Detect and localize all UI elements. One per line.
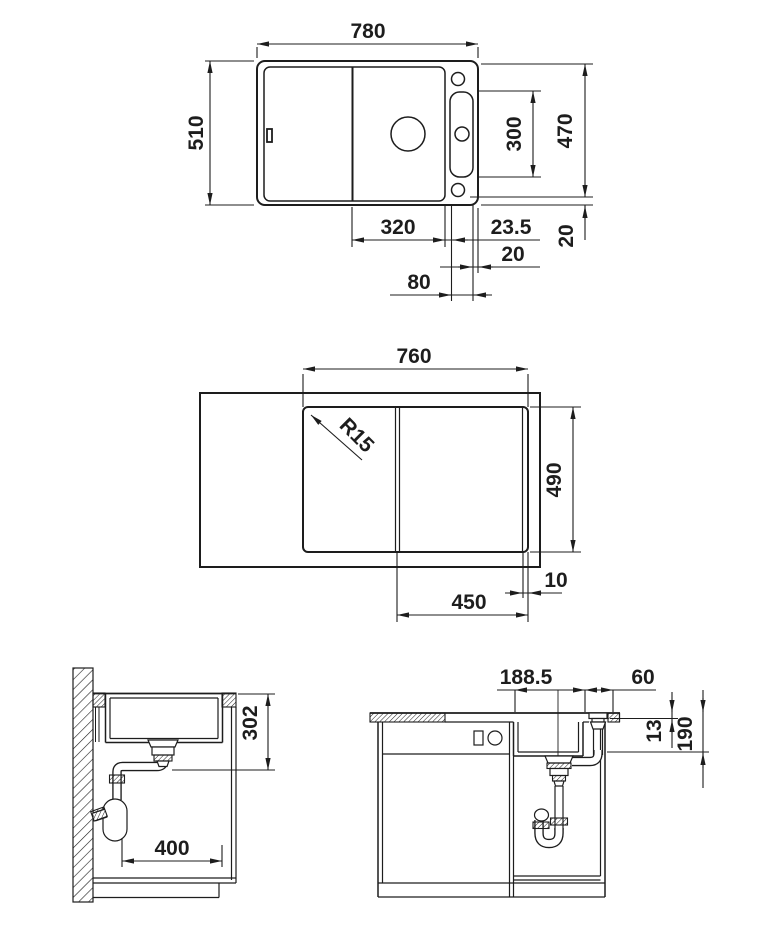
worktop-outline xyxy=(200,393,540,567)
sink-inner-rim xyxy=(264,67,445,201)
tap-hole-middle xyxy=(455,127,469,141)
trap-outlet-end xyxy=(535,809,549,821)
dim-label-60: 60 xyxy=(631,666,654,689)
dim-label-490: 490 xyxy=(543,462,566,497)
counter-hatch-right xyxy=(608,713,620,722)
dim-label-edge-gap-20: 20 xyxy=(501,243,524,266)
dim-label-450: 450 xyxy=(451,591,486,614)
dim-label-rear-gap-20: 20 xyxy=(555,224,578,247)
view-front-section: 188.5 60 13 190 xyxy=(370,666,709,897)
dim-label-300: 300 xyxy=(503,116,526,151)
dim-label-760: 760 xyxy=(396,345,431,368)
dim-label-302: 302 xyxy=(239,705,262,740)
siphon-trap xyxy=(103,799,127,841)
drain-hole xyxy=(391,117,425,151)
dim-label-400: 400 xyxy=(154,837,189,860)
dim-label-10: 10 xyxy=(544,569,567,592)
dim-label-190: 190 xyxy=(674,716,697,751)
dim-label-23-5: 23.5 xyxy=(491,216,532,239)
counter-right-block xyxy=(222,693,236,707)
control-fitting-cap xyxy=(589,713,607,719)
strainer-flange xyxy=(148,740,178,747)
strainer-nut xyxy=(154,755,172,761)
dim-label-188-5: 188.5 xyxy=(500,666,553,689)
dim-label-320: 320 xyxy=(380,216,415,239)
pipe-coupling xyxy=(110,775,125,783)
technical-drawing-page: 780 510 470 20 300 320 23.5 xyxy=(0,0,760,932)
wall-hatch xyxy=(73,668,93,902)
view-side-section: 302 400 xyxy=(73,668,275,902)
view-worktop-cutout: 760 R15 490 450 10 xyxy=(200,345,581,622)
overflow-mark xyxy=(267,129,272,142)
dim-label-470: 470 xyxy=(554,113,577,148)
dim-label-510: 510 xyxy=(185,115,208,150)
dim-label-r15: R15 xyxy=(335,414,379,458)
tap-hole-bottom xyxy=(452,184,465,197)
appliance-circle xyxy=(488,731,502,745)
tap-hole-top xyxy=(452,73,465,86)
appliance-square xyxy=(474,731,483,745)
sink-drawing-svg: 780 510 470 20 300 320 23.5 xyxy=(0,0,760,932)
dim-label-80: 80 xyxy=(407,271,430,294)
strainer-flange-front xyxy=(545,756,573,763)
view-plan-top: 780 510 470 20 300 320 23.5 xyxy=(185,20,593,301)
counter-hatch-left xyxy=(370,713,445,722)
trap-coupling xyxy=(551,818,568,825)
counter-left-block xyxy=(93,693,105,707)
dim-label-13: 13 xyxy=(643,719,666,742)
dim-label-780: 780 xyxy=(350,20,385,43)
